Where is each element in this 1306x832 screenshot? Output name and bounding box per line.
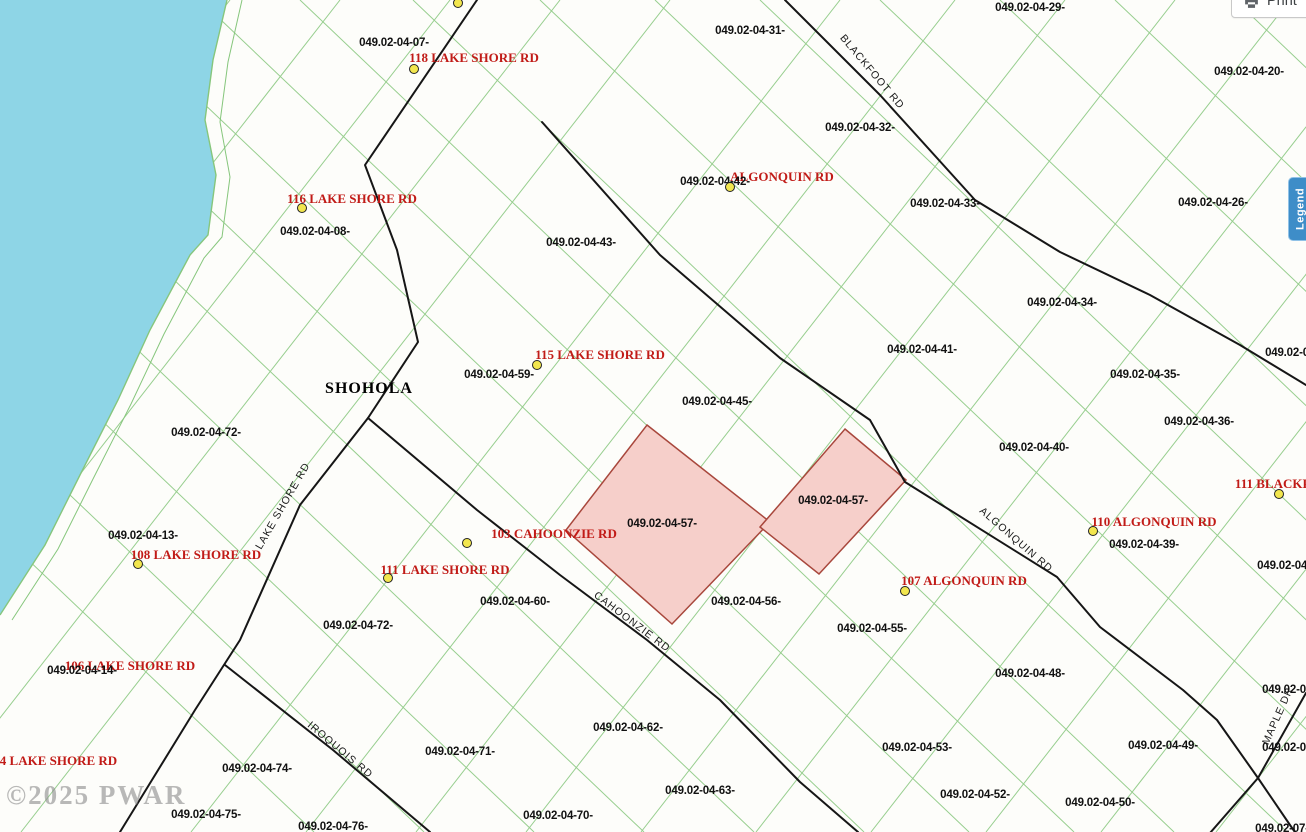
parcel-id-label: 049.02-04-71- xyxy=(425,746,495,758)
parcel-id-label: 049.02-04-74- xyxy=(222,763,292,775)
parcel-id-label: 049.02-0 xyxy=(1262,684,1306,696)
parcel-id-label: 049.02-04-76- xyxy=(298,821,368,832)
parcel-point-marker[interactable] xyxy=(297,203,307,213)
parcel-id-label: 049.02-07-44- xyxy=(1255,823,1306,832)
parcel-id-label: 049.02-04-42- xyxy=(680,176,750,188)
address-label: 115 LAKE SHORE RD xyxy=(535,347,665,363)
parcel-id-label: 049.02-04-31- xyxy=(715,25,785,37)
parcel-point-marker[interactable] xyxy=(409,64,419,74)
road-name-label: LAKE SHORE RD xyxy=(253,460,312,551)
address-label: 111 LAKE SHORE RD xyxy=(381,562,510,578)
road-name-label: CAHOONZIE RD xyxy=(591,589,672,654)
parcel-point-marker[interactable] xyxy=(462,538,472,548)
parcel-id-label: 049.02-04-59- xyxy=(464,369,534,381)
parcel-point-marker[interactable] xyxy=(900,586,910,596)
parcel-id-label: 049.02-04-72- xyxy=(323,620,393,632)
printer-icon xyxy=(1243,0,1260,10)
parcel-id-label: 049.02-04-33- xyxy=(910,198,980,210)
parcel-point-marker[interactable] xyxy=(532,360,542,370)
town-label: SHOHOLA xyxy=(325,380,413,398)
parcel-id-label: 049.02-04-35- xyxy=(1110,369,1180,381)
print-button[interactable]: Print xyxy=(1231,0,1306,18)
address-label: 110 ALGONQUIN RD xyxy=(1092,514,1217,530)
parcel-id-label: 049.02-04-57- xyxy=(798,495,868,507)
parcel-point-marker[interactable] xyxy=(1274,489,1284,499)
parcel-id-label: 049.02-04-72- xyxy=(171,427,241,439)
road-name-label: IROQUOIS RD xyxy=(305,719,375,781)
parcel-id-label: 049.02-0 xyxy=(1262,742,1306,754)
parcel-id-label: 049.02-0 xyxy=(1265,347,1306,359)
address-label: 104 LAKE SHORE RD xyxy=(0,753,117,769)
parcel-id-label: 049.02-04-50- xyxy=(1065,797,1135,809)
parcel-id-label: 049.02-04-70- xyxy=(523,810,593,822)
parcel-id-label: 049.02-04-60- xyxy=(480,596,550,608)
copyright-watermark: ©2025 PWAR xyxy=(6,780,186,811)
parcel-id-label: 049.02-04-52- xyxy=(940,789,1010,801)
parcel-id-label: 049.02-04-32- xyxy=(825,122,895,134)
address-label: 103 CAHOONZIE RD xyxy=(491,526,617,542)
parcel-id-label: 049.02-04-41- xyxy=(887,344,957,356)
road-name-label: BLACKFOOT RD xyxy=(837,32,906,111)
parcel-id-label: 049.02-04-45- xyxy=(682,396,752,408)
road-name-label: ALGONQUIN RD xyxy=(977,505,1055,575)
parcel-id-label: 049.02-04-37- xyxy=(1257,560,1306,572)
parcel-id-label: 049.02-04-34- xyxy=(1027,297,1097,309)
parcel-id-label: 049.02-04-20- xyxy=(1214,66,1284,78)
parcel-point-marker[interactable] xyxy=(1088,526,1098,536)
parcel-id-label: 049.02-04-63- xyxy=(665,785,735,797)
parcel-id-label: 049.02-04-57- xyxy=(627,518,697,530)
legend-tab[interactable]: Legend xyxy=(1288,177,1306,241)
address-label: 107 ALGONQUIN RD xyxy=(901,573,1027,589)
parcel-id-label: 049.02-04-07- xyxy=(359,37,429,49)
address-label: 118 LAKE SHORE RD xyxy=(409,50,539,66)
parcel-point-marker[interactable] xyxy=(133,559,143,569)
parcel-point-marker[interactable] xyxy=(453,0,463,8)
parcel-id-label: 049.02-04-14- xyxy=(47,665,117,677)
parcel-id-label: 049.02-04-43- xyxy=(546,237,616,249)
address-label: 108 LAKE SHORE RD xyxy=(131,547,261,563)
parcel-id-label: 049.02-04-56- xyxy=(711,596,781,608)
parcel-id-label: 049.02-04-26- xyxy=(1178,197,1248,209)
parcel-id-label: 049.02-04-29- xyxy=(995,2,1065,14)
map-viewport[interactable]: BLACKFOOT RDLAKE SHORE RDALGONQUIN RDCAH… xyxy=(0,0,1306,832)
address-label: 116 LAKE SHORE RD xyxy=(287,191,417,207)
parcel-id-label: 049.02-04-39- xyxy=(1109,539,1179,551)
parcel-id-label: 049.02-04-08- xyxy=(280,226,350,238)
parcel-id-label: 049.02-04-62- xyxy=(593,722,663,734)
labels-layer: BLACKFOOT RDLAKE SHORE RDALGONQUIN RDCAH… xyxy=(0,0,1306,832)
print-button-label: Print xyxy=(1267,0,1297,9)
parcel-point-marker[interactable] xyxy=(725,182,735,192)
address-label: 111 BLACKFOOT RD xyxy=(1235,476,1306,492)
parcel-id-label: 049.02-04-13- xyxy=(108,530,178,542)
parcel-id-label: 049.02-04-53- xyxy=(882,742,952,754)
parcel-point-marker[interactable] xyxy=(383,573,393,583)
parcel-id-label: 049.02-04-48- xyxy=(995,668,1065,680)
parcel-id-label: 049.02-04-55- xyxy=(837,623,907,635)
parcel-id-label: 049.02-04-49- xyxy=(1128,740,1198,752)
parcel-id-label: 049.02-04-40- xyxy=(999,442,1069,454)
parcel-id-label: 049.02-04-36- xyxy=(1164,416,1234,428)
